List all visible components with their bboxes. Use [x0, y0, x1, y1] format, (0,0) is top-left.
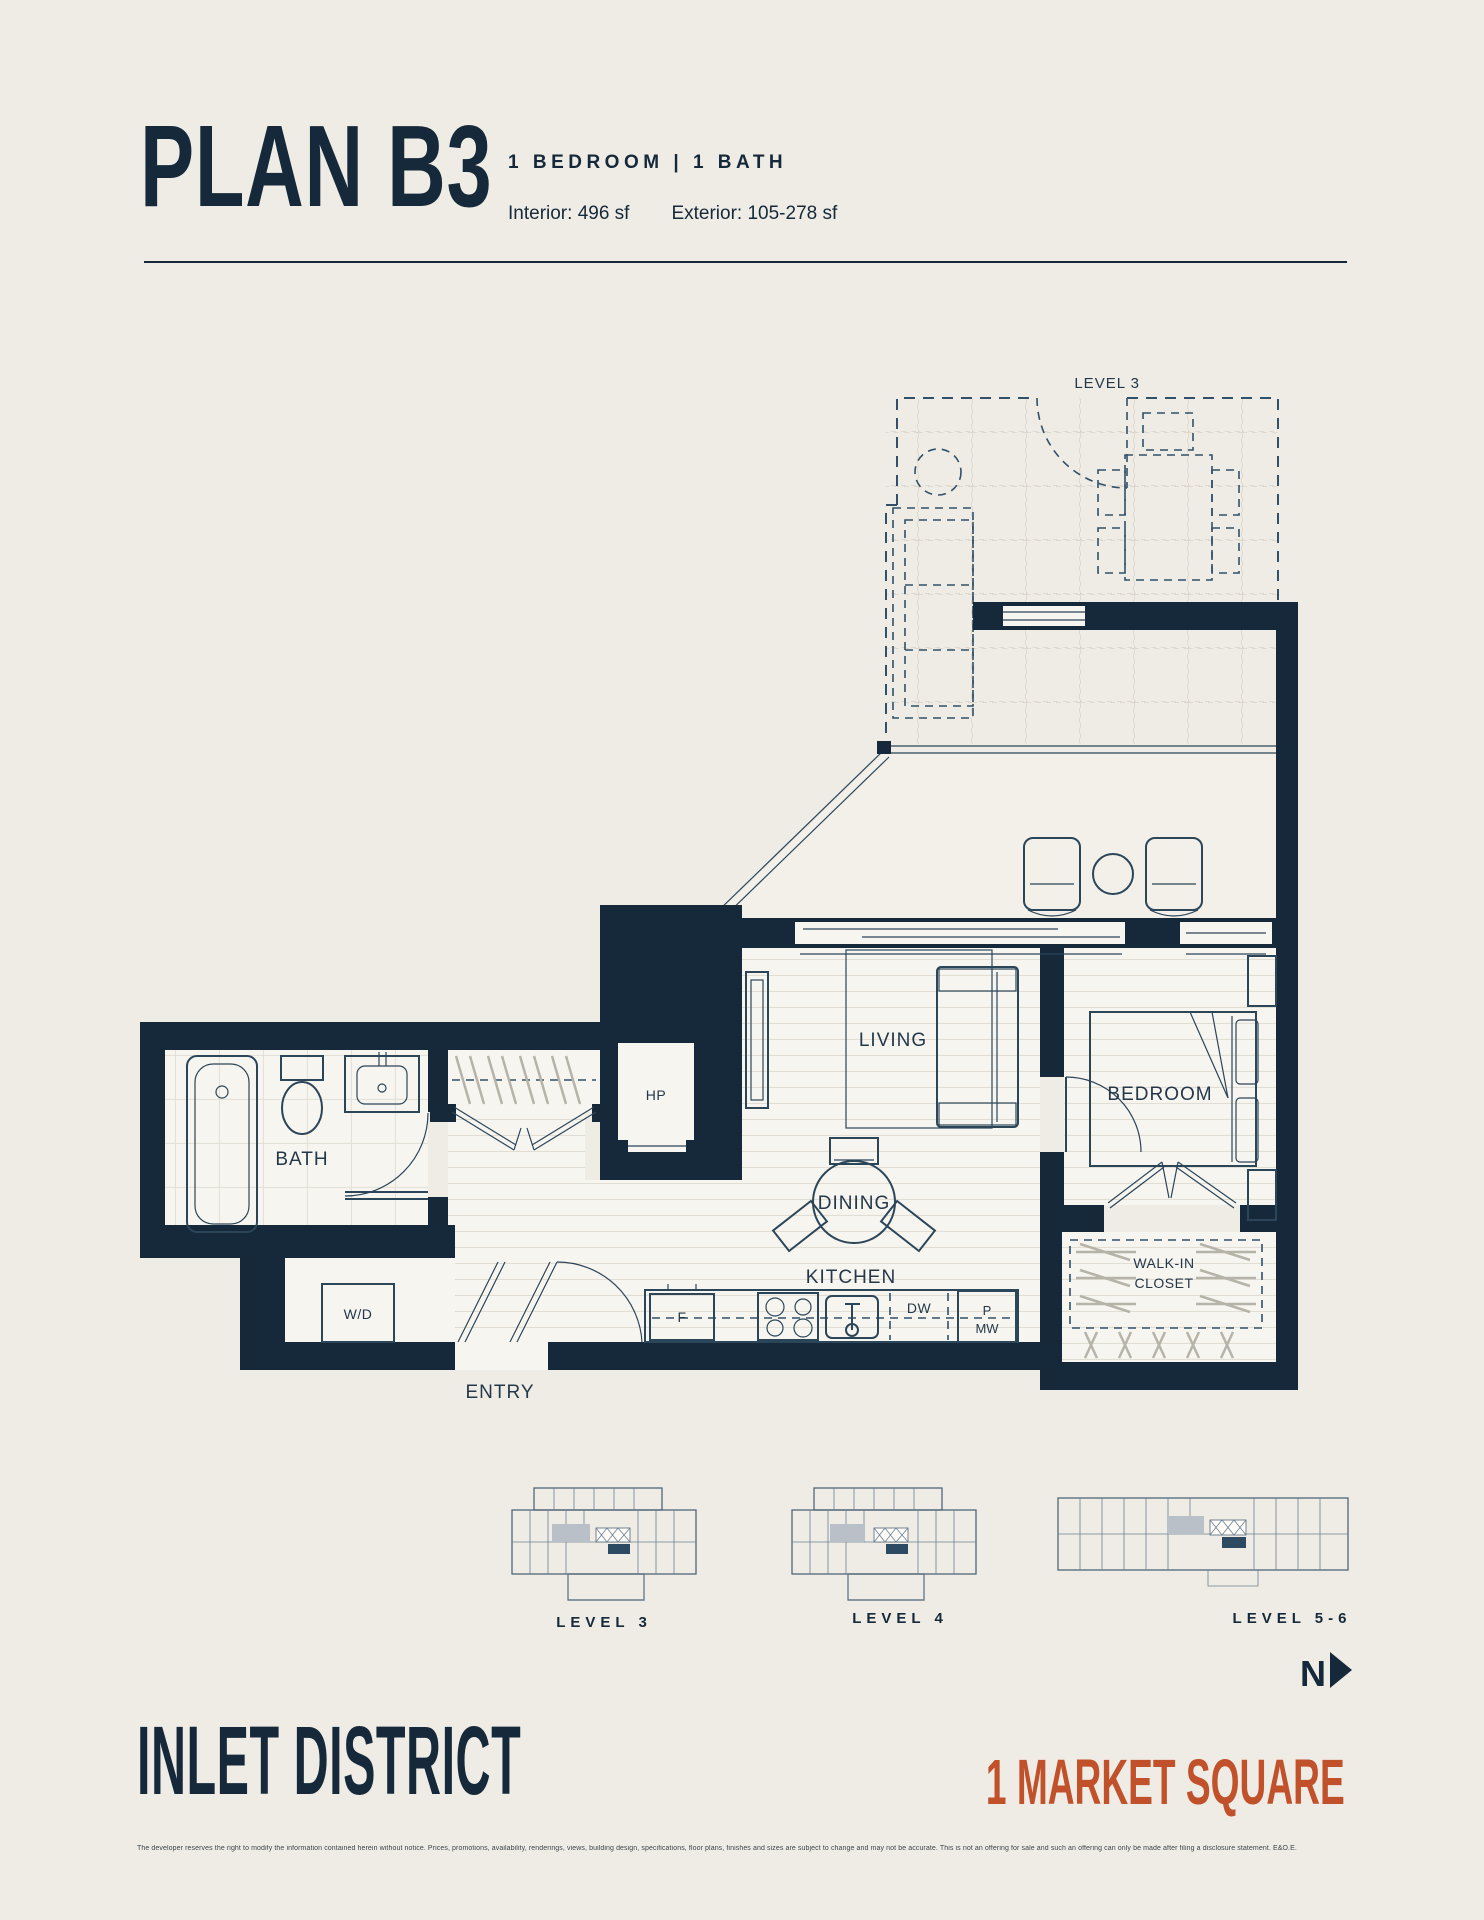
keyplan-level-3	[512, 1488, 696, 1600]
entry-label: ENTRY	[465, 1382, 534, 1403]
deck-level-label: LEVEL 3	[1074, 375, 1140, 392]
brand-logo: INLET DISTRICT	[137, 1712, 521, 1809]
dishwasher-label: DW	[907, 1300, 932, 1316]
address-logo: 1 MARKET SQUARE	[986, 1750, 1345, 1814]
roof-deck: LEVEL 3	[886, 375, 1278, 744]
keyplan-level5-6-label: LEVEL 5-6	[1233, 1610, 1352, 1627]
fridge-label: F	[677, 1309, 686, 1325]
keyplan-level3-label: LEVEL 3	[556, 1614, 652, 1631]
keyplan-level-4	[792, 1488, 976, 1600]
bedroom-label: BEDROOM	[1107, 1084, 1212, 1105]
floorplan-sheet: PLAN B3 1 BEDROOM | 1 BATH Interior: 496…	[0, 0, 1484, 1920]
dining-label: DINING	[818, 1193, 891, 1214]
washer-dryer-label: W/D	[344, 1306, 373, 1322]
legal-disclaimer: The developer reserves the right to modi…	[137, 1845, 1347, 1852]
floor-plan-drawing: LEVEL 3	[0, 0, 1484, 1920]
microwave-label: MW	[975, 1321, 999, 1336]
hp-closet: HP	[618, 1043, 694, 1152]
keyplan-level-5-6	[1058, 1498, 1348, 1586]
walkin-label-line1: WALK-IN	[1133, 1255, 1194, 1271]
pantry-label: P	[983, 1303, 992, 1318]
balcony	[707, 741, 1276, 920]
walkin-label-line2: CLOSET	[1134, 1275, 1193, 1291]
north-arrow-icon: N	[1300, 1652, 1352, 1694]
hp-label: HP	[646, 1087, 666, 1103]
keyplan-level4-label: LEVEL 4	[852, 1610, 948, 1627]
living-label: LIVING	[859, 1030, 927, 1051]
bath-label: BATH	[275, 1149, 328, 1170]
north-label: N	[1300, 1653, 1326, 1694]
kitchen-label: KITCHEN	[806, 1267, 896, 1288]
